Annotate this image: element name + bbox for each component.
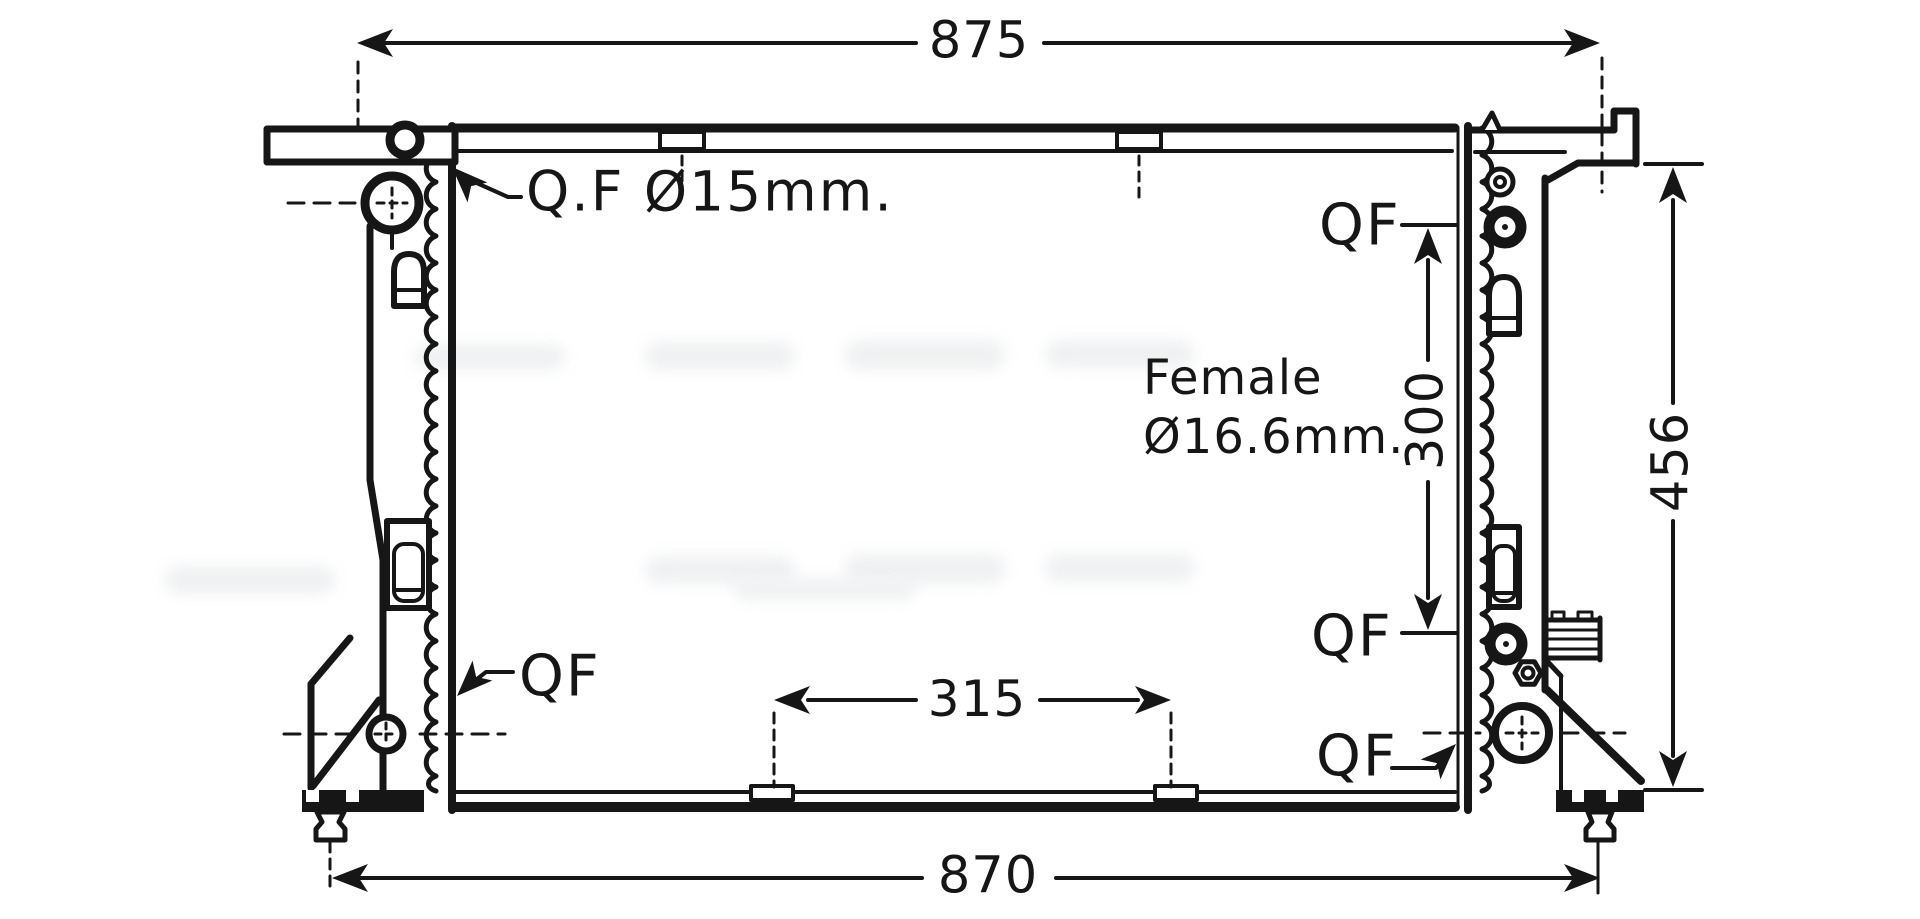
leader-bottom-left-port	[447, 661, 513, 706]
cooler-fitting	[1545, 612, 1600, 660]
left-foot-pin	[316, 812, 345, 840]
dim-mount-spacing: 315	[928, 674, 1026, 724]
dim-overall-height: 456	[1646, 412, 1697, 512]
callout-top-left-port: Q.F Ø15mm.	[526, 165, 894, 220]
dim-top-width: 875	[929, 16, 1029, 67]
left-top-bracket	[267, 129, 455, 162]
right-clip-arch	[1489, 277, 1519, 334]
right-foot-bar	[1556, 790, 1644, 812]
line-art	[0, 0, 1920, 919]
left-foot-bar	[302, 790, 424, 812]
top-clip	[660, 132, 704, 149]
female-size-line1: Female	[1143, 349, 1404, 408]
callout-female-size: Female Ø16.6mm.	[1143, 349, 1404, 466]
right-tank	[1424, 111, 1636, 760]
bottom-clip	[751, 786, 793, 800]
callout-right-middle-port: QF	[1311, 609, 1393, 666]
callout-right-bottom-port: QF	[1316, 729, 1398, 786]
callout-bottom-left-port: QF	[519, 649, 601, 706]
hex-bolt	[1515, 662, 1541, 685]
right-mount-bracket	[1546, 660, 1644, 840]
leader-right-bottom-port	[1392, 734, 1466, 779]
female-size-line2: Ø16.6mm.	[1143, 408, 1404, 467]
right-foot-pin	[1586, 812, 1614, 840]
top-clip	[1117, 132, 1161, 149]
left-clip-arch	[394, 254, 424, 306]
left-gasket-path	[426, 128, 436, 791]
dim-port-spacing: 300	[1401, 370, 1452, 470]
dim-bottom-width: 870	[938, 851, 1038, 902]
bottom-clip	[1155, 786, 1197, 800]
callout-right-top-port: QF	[1319, 198, 1401, 255]
bracket-pin	[390, 125, 420, 155]
radiator-technical-drawing: 875 870 315 456 300 Q.F Ø15mm. QF QF QF …	[0, 0, 1920, 919]
